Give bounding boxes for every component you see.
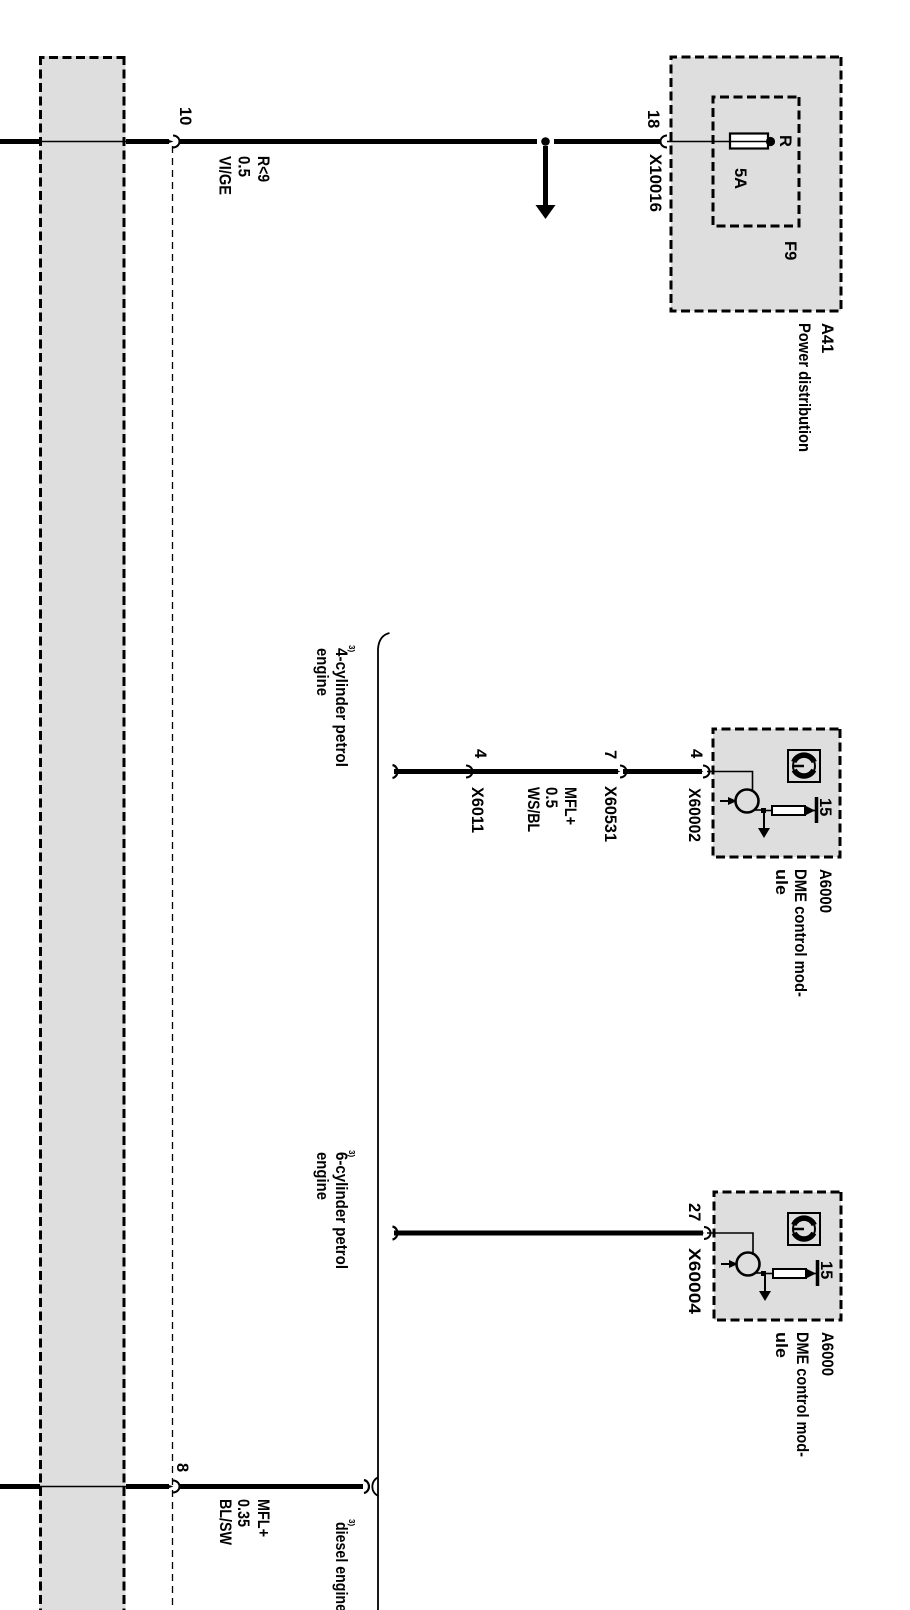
svg-text:0.35: 0.35	[234, 1499, 252, 1527]
svg-text:X60002: X60002	[685, 788, 703, 842]
svg-text:6-cylinder petrol: 6-cylinder petrol	[332, 1152, 350, 1269]
svg-text:8: 8	[173, 1463, 191, 1472]
svg-text:Power distribution: Power distribution	[795, 323, 813, 452]
svg-text:R: R	[776, 135, 794, 147]
svg-text:0.5: 0.5	[235, 156, 253, 177]
svg-text:27: 27	[685, 1203, 703, 1221]
svg-text:VI/GE: VI/GE	[216, 156, 234, 195]
svg-text:0.5: 0.5	[542, 787, 560, 808]
svg-text:4: 4	[687, 749, 705, 759]
svg-text:A6000: A6000	[818, 1332, 836, 1376]
svg-text:15: 15	[816, 798, 834, 816]
svg-text:MFL+: MFL+	[561, 787, 579, 825]
svg-text:A6000: A6000	[816, 869, 834, 913]
svg-text:engine: engine	[313, 1152, 331, 1200]
svg-text:5A: 5A	[731, 168, 749, 189]
svg-text:F9: F9	[781, 241, 799, 260]
svg-text:DME control mod-: DME control mod-	[791, 869, 809, 997]
svg-text:DME control mod-: DME control mod-	[793, 1332, 811, 1457]
svg-text:engine: engine	[313, 648, 331, 696]
svg-text:A41: A41	[818, 323, 836, 353]
svg-text:ule: ule	[772, 1332, 790, 1358]
svg-text:X60531: X60531	[601, 786, 619, 842]
svg-text:WS/BL: WS/BL	[524, 787, 542, 832]
svg-text:4: 4	[471, 749, 489, 759]
svg-text:BL/SW: BL/SW	[216, 1499, 234, 1545]
svg-text:4-cylinder petrol: 4-cylinder petrol	[332, 648, 350, 767]
svg-text:MFL+: MFL+	[254, 1499, 272, 1537]
svg-text:18: 18	[644, 110, 662, 128]
svg-text:X10016: X10016	[646, 154, 664, 212]
svg-text:10: 10	[176, 107, 194, 125]
svg-text:X6011: X6011	[468, 787, 486, 833]
svg-text:diesel engine: diesel engine	[332, 1522, 350, 1610]
svg-text:R<9: R<9	[254, 156, 272, 182]
svg-text:15: 15	[817, 1261, 835, 1279]
svg-text:ule: ule	[772, 869, 790, 895]
svg-text:X60004: X60004	[685, 1248, 703, 1315]
svg-text:7: 7	[601, 750, 619, 759]
